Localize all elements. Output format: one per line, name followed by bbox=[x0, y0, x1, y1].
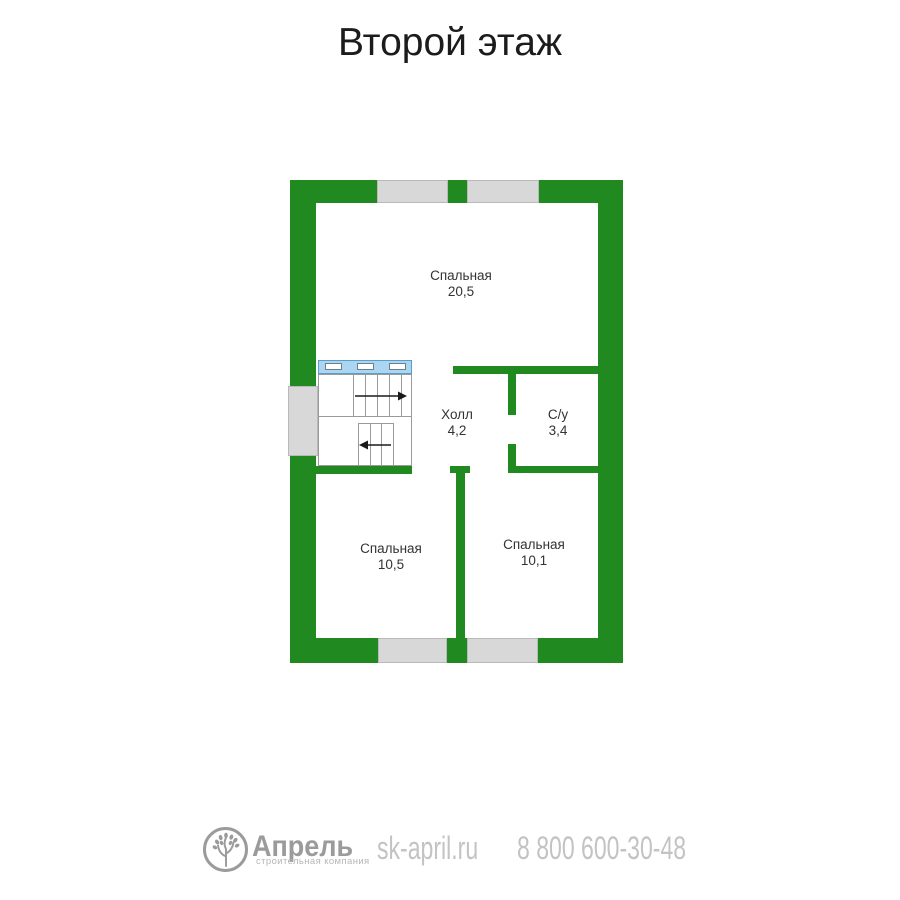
tree-icon bbox=[210, 832, 242, 868]
phone-number: 8 800 600-30-48 bbox=[517, 830, 686, 867]
bathroom-left-wall-lower bbox=[508, 444, 516, 466]
stair-treads bbox=[318, 374, 412, 466]
wall-top bbox=[290, 180, 623, 203]
room-label-bedroom-left: Спальная 10,5 bbox=[360, 541, 422, 572]
bathroom-bottom-wall bbox=[508, 466, 598, 473]
stairs-bottom-wall bbox=[316, 466, 412, 474]
company-logo bbox=[203, 827, 248, 872]
window-bottom-right bbox=[467, 638, 538, 663]
bedroom-divider-wall bbox=[456, 473, 465, 638]
room-area: 10,5 bbox=[360, 557, 422, 573]
window-left bbox=[288, 386, 318, 456]
bedroom-divider-wall-cap bbox=[450, 466, 470, 473]
railing-post bbox=[325, 363, 342, 370]
hall-top-wall bbox=[453, 366, 598, 374]
website-url: sk-april.ru bbox=[377, 830, 478, 867]
railing-post bbox=[357, 363, 374, 370]
room-area: 20,5 bbox=[430, 284, 492, 300]
stair-railing bbox=[318, 360, 412, 374]
room-name: Спальная bbox=[503, 537, 565, 553]
room-area: 4,2 bbox=[441, 423, 473, 439]
room-label-hall: Холл 4,2 bbox=[441, 407, 473, 438]
room-name: Спальная bbox=[360, 541, 422, 557]
wall-right bbox=[598, 180, 623, 663]
room-name: Спальная bbox=[430, 268, 492, 284]
room-area: 3,4 bbox=[548, 423, 568, 439]
room-area: 10,1 bbox=[503, 553, 565, 569]
room-name: Холл bbox=[441, 407, 473, 423]
company-name: Апрель bbox=[252, 830, 353, 864]
window-bottom-left bbox=[378, 638, 447, 663]
window-top-left bbox=[377, 180, 448, 203]
window-top-right bbox=[467, 180, 539, 203]
railing-post bbox=[389, 363, 406, 370]
footer: Апрель строительная компания sk-april.ru… bbox=[0, 0, 900, 900]
wall-bottom bbox=[290, 638, 623, 663]
floor-plan-page: Второй этаж bbox=[0, 0, 900, 900]
bathroom-left-wall-upper bbox=[508, 374, 516, 415]
room-label-bedroom-right: Спальная 10,1 bbox=[503, 537, 565, 568]
room-label-bedroom-large: Спальная 20,5 bbox=[430, 268, 492, 299]
room-label-bathroom: С/у 3,4 bbox=[548, 407, 568, 438]
room-name: С/у bbox=[548, 407, 568, 423]
page-title: Второй этаж bbox=[0, 21, 900, 65]
company-tagline: строительная компания bbox=[256, 856, 370, 867]
